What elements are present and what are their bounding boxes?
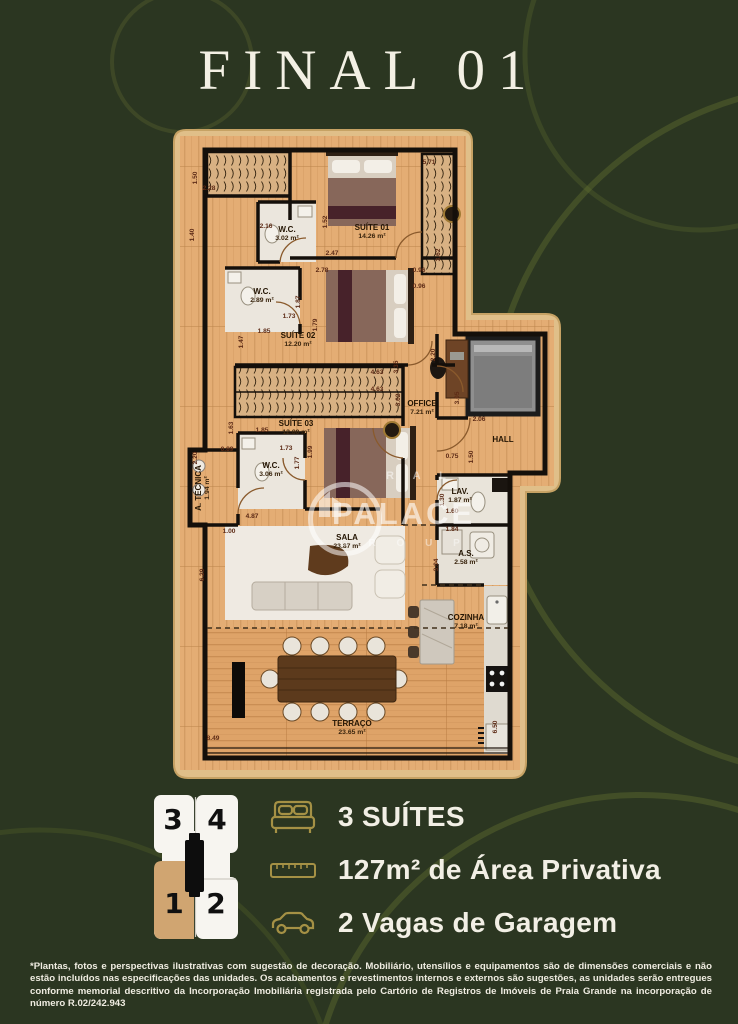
room-label: SUÍTE 0312.80 m²	[279, 419, 314, 436]
dimension-label: 0.75	[446, 453, 459, 460]
dimension-label: 1.87	[295, 295, 302, 308]
dimension-label: 8.49	[207, 735, 220, 742]
dimension-label: 1.84	[446, 526, 459, 533]
bed-icon	[268, 797, 318, 837]
dimension-label: 1.99	[307, 445, 314, 458]
room-label: SALA23.87 m²	[333, 533, 361, 550]
feature-garage: 2 Vagas de Garagem	[268, 903, 728, 943]
dimension-label: 0.96	[413, 283, 426, 290]
keyplan-unit-2: 2	[206, 887, 225, 920]
feature-garage-text: 2 Vagas de Garagem	[338, 907, 617, 939]
page-title: FINAL 01	[0, 38, 738, 103]
dimension-label: 1.79	[312, 318, 319, 331]
keyplan-unit-4: 4	[207, 803, 226, 836]
dimension-label: 3.62	[435, 248, 442, 261]
bed-suite-02	[326, 268, 414, 344]
room-label: SUÍTE 0114.26 m²	[355, 223, 390, 240]
tv-console	[232, 662, 245, 718]
feature-area: 127m² de Área Privativa	[268, 850, 728, 890]
dimension-label: 2.78	[316, 267, 329, 274]
dimension-label: 1.47	[238, 335, 245, 348]
bed-suite-01	[326, 150, 398, 226]
dimension-label: 0.96	[413, 267, 426, 274]
dimension-label: 3.04	[433, 558, 440, 571]
dimension-label: 2.16	[260, 223, 273, 230]
room-label: OFFICE7.21 m²	[407, 399, 437, 416]
dimension-label: 4.63	[371, 386, 384, 393]
dimension-label: 4.63	[371, 369, 384, 376]
feature-area-text: 127m² de Área Privativa	[338, 854, 661, 886]
keyplan: 3 4 1 2	[146, 791, 246, 951]
dimension-label: 2.06	[473, 416, 486, 423]
dimension-label: 2.28	[203, 185, 216, 192]
dimension-label: 1.73	[280, 445, 293, 452]
feature-suites-text: 3 SUÍTES	[338, 801, 465, 833]
feature-suites: 3 SUÍTES	[268, 797, 728, 837]
kitchen-island	[408, 600, 454, 664]
dimension-label: 1.00	[223, 528, 236, 535]
ruler-icon	[268, 850, 318, 890]
room-label: HALL	[492, 435, 513, 444]
dimension-label: 1.50	[192, 171, 199, 184]
room-label: SUÍTE 0212.20 m²	[281, 331, 316, 348]
dimension-label: 1.40	[189, 228, 196, 241]
dimension-label: 2.47	[326, 250, 339, 257]
dimension-label: 1.85	[256, 427, 269, 434]
dimension-label: 1.52	[322, 215, 329, 228]
dimension-label: 6.50	[492, 720, 499, 733]
dimension-label: 6.29	[199, 568, 206, 581]
floor-plan: SUÍTE 0114.26 m²W.C.3.02 m²SUÍTE 0212.20…	[170, 128, 575, 786]
floor-plan-svg: SUÍTE 0114.26 m²W.C.3.02 m²SUÍTE 0212.20…	[170, 128, 575, 786]
dimension-label: 2.20	[192, 451, 199, 464]
disclaimer-text: *Plantas, fotos e perspectivas ilustrati…	[30, 961, 712, 1011]
dimension-label: 3.62	[395, 393, 402, 406]
dimension-label: 1.30	[439, 493, 446, 506]
dimension-label: 5.71	[423, 159, 436, 166]
keyplan-core	[185, 833, 204, 897]
dimension-label: 3.05	[454, 391, 461, 404]
dimension-label: 3.35	[393, 360, 400, 373]
dimension-label: 1.60	[446, 508, 459, 515]
dimension-label: 1.73	[283, 313, 296, 320]
keyplan-unit-1: 1	[164, 887, 183, 920]
feature-list: 3 SUÍTES 127m² de Área Privativa 2 Vag	[268, 797, 728, 956]
elevator	[468, 338, 538, 414]
dimension-label: 1.85	[258, 328, 271, 335]
dimension-label: 1.77	[294, 456, 301, 469]
car-icon	[268, 903, 318, 943]
dimension-label: 1.50	[468, 450, 475, 463]
flyer-page: FINAL 01	[0, 0, 738, 1024]
dimension-label: 1.63	[228, 421, 235, 434]
dimension-label: 0.89	[221, 446, 234, 453]
dimension-label: 2.20	[430, 348, 437, 361]
dimension-label: 4.87	[246, 513, 259, 520]
keyplan-unit-3: 3	[163, 803, 182, 836]
